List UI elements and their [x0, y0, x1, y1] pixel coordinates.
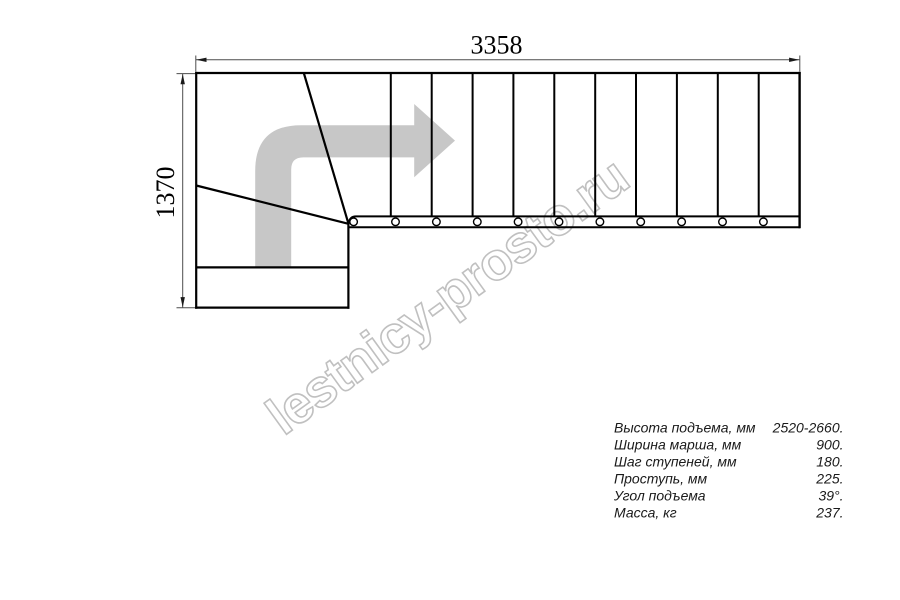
svg-text:1370: 1370	[151, 167, 180, 219]
svg-text:225.: 225.	[815, 471, 843, 487]
svg-text:3358: 3358	[471, 31, 523, 60]
svg-text:Шаг ступеней, мм: Шаг ступеней, мм	[614, 454, 737, 470]
svg-text:Проступь, мм: Проступь, мм	[614, 471, 708, 487]
svg-text:Ширина марша, мм: Ширина марша, мм	[614, 437, 742, 453]
svg-text:Угол подъема: Угол подъема	[613, 488, 706, 504]
svg-text:2520-2660.: 2520-2660.	[772, 420, 844, 436]
svg-text:237.: 237.	[815, 505, 843, 521]
svg-text:180.: 180.	[816, 454, 843, 470]
svg-text:39°.: 39°.	[818, 488, 843, 504]
svg-text:900.: 900.	[816, 437, 843, 453]
svg-text:Масса, кг: Масса, кг	[614, 505, 677, 521]
svg-text:Высота подъема, мм: Высота подъема, мм	[614, 420, 756, 436]
